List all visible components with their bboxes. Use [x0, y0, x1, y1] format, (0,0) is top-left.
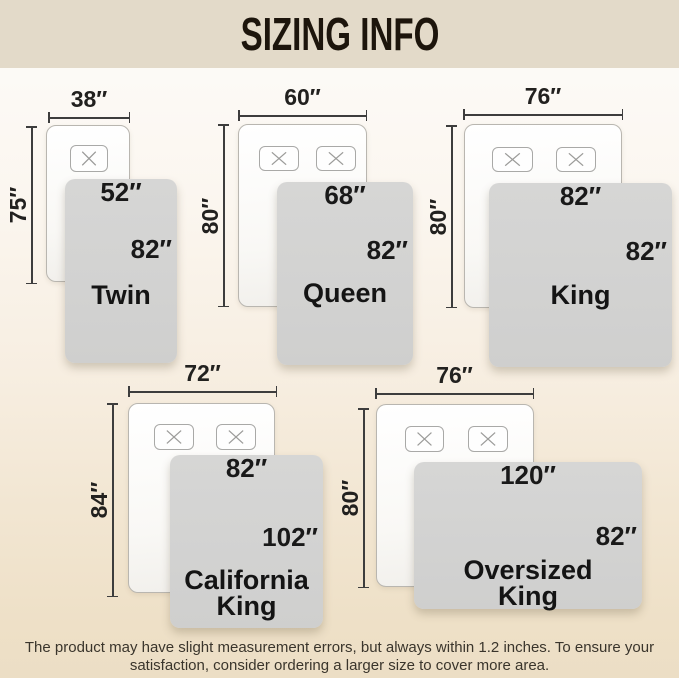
- dimension-tick: [238, 110, 240, 121]
- dimension-tick: [26, 283, 37, 285]
- pillow: [316, 146, 356, 171]
- dimension-tick: [358, 587, 369, 589]
- pillow-x-icon: [317, 147, 355, 170]
- dimension-tick: [218, 306, 229, 308]
- length-dimension-line: [363, 408, 365, 588]
- bed-name-line: Queen: [277, 280, 413, 306]
- mattress-length-label: 80″: [197, 183, 223, 249]
- mattress-length-label: 84″: [86, 467, 112, 533]
- dimension-tick: [533, 388, 535, 399]
- pillow-x-icon: [406, 427, 443, 451]
- pillow: [259, 146, 299, 171]
- length-dimension-line: [112, 403, 114, 597]
- width-dimension-line: [48, 117, 130, 119]
- dimension-tick: [107, 596, 118, 598]
- blanket: 120″ 82″ OversizedKing: [414, 462, 642, 609]
- bed-name: Queen: [277, 280, 413, 306]
- mattress-width-label: 72″: [128, 360, 277, 386]
- blanket-length-label: 102″: [170, 522, 323, 552]
- pillow-x-icon: [469, 427, 507, 451]
- blanket-length-label: 82″: [277, 235, 413, 265]
- length-dimension-line: [451, 125, 453, 308]
- blanket: 52″ 82″ Twin: [65, 179, 177, 363]
- blanket-length-label: 82″: [65, 234, 177, 264]
- length-dimension-line: [31, 126, 33, 284]
- dimension-tick: [128, 386, 130, 397]
- dimension-tick: [218, 124, 229, 126]
- pillow-x-icon: [217, 425, 255, 449]
- blanket-width-label: 68″: [277, 180, 413, 210]
- mattress-width-label: 60″: [238, 84, 367, 110]
- dimension-tick: [107, 403, 118, 405]
- bed-name-line: King: [489, 282, 672, 308]
- bed-name-line: Oversized: [414, 557, 642, 583]
- mattress-width-label: 38″: [48, 86, 130, 112]
- dimension-tick: [446, 307, 457, 309]
- dimension-tick: [26, 126, 37, 128]
- pillow-x-icon: [493, 148, 532, 171]
- dimension-tick: [366, 110, 368, 121]
- dimension-tick: [375, 388, 377, 399]
- bed-name-line: Twin: [65, 282, 177, 308]
- pillow-x-icon: [260, 147, 298, 170]
- blanket-width-label: 120″: [414, 460, 642, 490]
- pillow: [405, 426, 444, 452]
- mattress-length-label: 80″: [337, 465, 363, 531]
- pillow: [556, 147, 596, 172]
- header-bar: SIZING INFO: [0, 0, 679, 68]
- dimension-tick: [446, 125, 457, 127]
- disclaimer-line-2: satisfaction, consider ordering a larger…: [0, 657, 679, 675]
- dimension-tick: [129, 112, 131, 123]
- blanket-length-label: 82″: [489, 236, 672, 266]
- dimension-tick: [276, 386, 278, 397]
- pillow: [70, 145, 108, 172]
- blanket-width-label: 82″: [489, 181, 672, 211]
- pillow: [154, 424, 194, 450]
- dimension-tick: [48, 112, 50, 123]
- blanket: 82″ 82″ King: [489, 183, 672, 367]
- dimension-tick: [358, 408, 369, 410]
- mattress-length-label: 80″: [425, 184, 451, 250]
- pillow: [216, 424, 256, 450]
- dimension-tick: [463, 109, 465, 120]
- bed-name: Twin: [65, 282, 177, 308]
- blanket-width-label: 52″: [65, 177, 177, 207]
- bed-name: OversizedKing: [414, 557, 642, 609]
- dimension-tick: [622, 109, 624, 120]
- bed-name-line: King: [170, 593, 323, 619]
- length-dimension-line: [223, 124, 225, 307]
- width-dimension-line: [463, 114, 623, 116]
- disclaimer-line-1: The product may have slight measurement …: [0, 639, 679, 657]
- pillow: [468, 426, 508, 452]
- width-dimension-line: [375, 393, 534, 395]
- bed-name: King: [489, 282, 672, 308]
- disclaimer-text: The product may have slight measurement …: [0, 639, 679, 675]
- mattress-width-label: 76″: [375, 362, 534, 388]
- pillow: [492, 147, 533, 172]
- page-title: SIZING INFO: [240, 7, 439, 61]
- blanket-width-label: 82″: [170, 453, 323, 483]
- sizing-info-graphic: SIZING INFO 38″ 75″ 52″ 82″ Twin 60″ 80″…: [0, 0, 679, 678]
- blanket: 68″ 82″ Queen: [277, 182, 413, 365]
- width-dimension-line: [128, 391, 277, 393]
- width-dimension-line: [238, 115, 367, 117]
- blanket-length-label: 82″: [414, 521, 642, 551]
- pillow-x-icon: [71, 146, 107, 171]
- bed-name: CaliforniaKing: [170, 567, 323, 619]
- mattress-width-label: 76″: [463, 83, 623, 109]
- pillow-x-icon: [155, 425, 193, 449]
- bed-name-line: King: [414, 583, 642, 609]
- pillow-x-icon: [557, 148, 595, 171]
- mattress-length-label: 75″: [5, 172, 31, 238]
- bed-name-line: California: [170, 567, 323, 593]
- blanket: 82″ 102″ CaliforniaKing: [170, 455, 323, 628]
